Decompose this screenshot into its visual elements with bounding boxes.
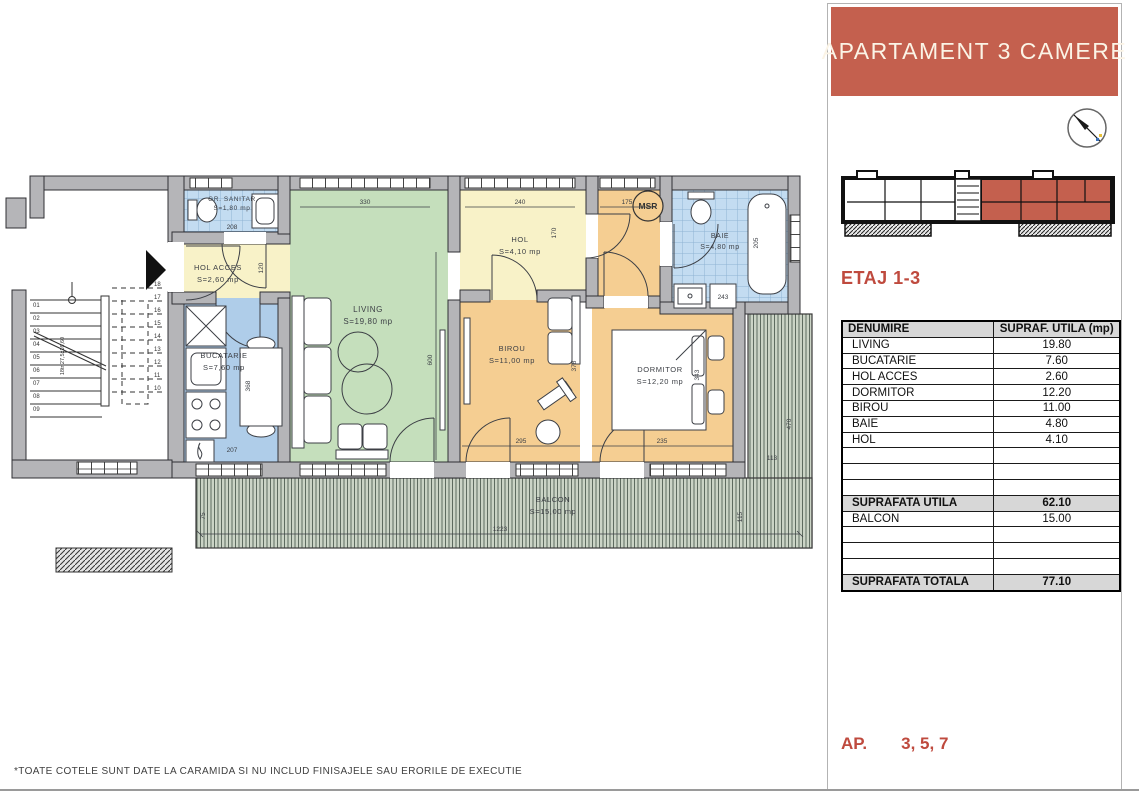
footnote: *TOATE COTELE SUNT DATE LA CARAMIDA SI N…	[14, 766, 522, 777]
svg-text:120: 120	[258, 262, 265, 273]
room-hol	[460, 190, 586, 300]
svg-text:208: 208	[227, 224, 238, 231]
table-empty-row	[842, 558, 1120, 574]
svg-text:04: 04	[33, 342, 40, 348]
svg-text:240: 240	[515, 199, 526, 206]
svg-text:S=19,80 mp: S=19,80 mp	[343, 317, 392, 326]
table-row: BIROU 11.00	[842, 400, 1120, 416]
tv-unit-icon	[440, 330, 445, 430]
gas-heater-icon	[186, 440, 214, 462]
office-sofa-icon	[548, 296, 580, 364]
window-hol-top	[465, 178, 575, 188]
window-living-bottom	[300, 464, 386, 476]
window-stair-bottom	[77, 462, 137, 474]
svg-text:115: 115	[737, 511, 744, 522]
svg-text:BIROU: BIROU	[499, 344, 526, 353]
north-arrow-icon	[1063, 104, 1111, 152]
mini-apartment-highlight	[981, 179, 1111, 221]
svg-text:BALCON: BALCON	[536, 495, 570, 504]
svg-text:GR. SANITAR: GR. SANITAR	[208, 196, 256, 203]
sofa-icon	[292, 296, 331, 448]
table-row: HOL 4.10	[842, 432, 1120, 448]
svg-text:378: 378	[571, 360, 578, 371]
svg-text:13: 13	[154, 347, 161, 353]
table-row: LIVING 19.80	[842, 337, 1120, 353]
svg-text:03: 03	[33, 329, 40, 335]
table-row: BAIE 4.80	[842, 416, 1120, 432]
table-empty-row	[842, 543, 1120, 559]
kitchen-sink-icon	[186, 306, 226, 346]
stove-icon	[186, 392, 226, 438]
building-key-plan	[837, 162, 1118, 262]
floor-plan-sheet: 18tr 27,5x16,60 0102 0304 0506 0708 09 1…	[0, 0, 1139, 800]
svg-text:207: 207	[227, 447, 238, 454]
svg-text:S=7,60 mp: S=7,60 mp	[203, 363, 245, 372]
svg-text:02: 02	[33, 316, 40, 322]
window-birou-bottom	[516, 464, 578, 476]
window-gr-sanitar	[190, 178, 232, 188]
col-header-suprafata: SUPRAF. UTILA (mp)	[994, 321, 1120, 337]
svg-text:75: 75	[200, 512, 207, 520]
svg-text:01: 01	[33, 303, 40, 309]
svg-text:175: 175	[622, 199, 633, 206]
svg-text:11: 11	[154, 373, 161, 379]
table-row: HOL ACCES 2.60	[842, 369, 1120, 385]
table-row: BUCATARIE 7.60	[842, 353, 1120, 369]
svg-text:15: 15	[154, 321, 161, 327]
window-living-top	[300, 178, 430, 188]
svg-text:205: 205	[753, 237, 760, 248]
svg-text:05: 05	[33, 355, 40, 361]
svg-text:1223: 1223	[493, 526, 508, 533]
svg-text:16: 16	[154, 308, 161, 314]
window-corridor-top	[600, 178, 655, 188]
svg-text:235: 235	[657, 438, 668, 445]
chair-icon	[536, 420, 560, 444]
table-header-row: DENUMIRE SUPRAF. UTILA (mp)	[842, 321, 1120, 337]
small-sofa-icon	[336, 424, 388, 459]
svg-text:09: 09	[33, 407, 40, 413]
svg-text:170: 170	[551, 227, 558, 238]
svg-text:HOL ACCES: HOL ACCES	[194, 263, 242, 272]
table-empty-row	[842, 464, 1120, 480]
gas-meter: MSR	[633, 191, 663, 221]
stair-note: 18tr 27,5x16,60	[60, 337, 66, 375]
window-dormitor-bottom	[650, 464, 726, 476]
svg-text:600: 600	[427, 354, 434, 365]
window-kitchen-bottom	[196, 464, 262, 476]
table-row: DORMITOR 12.20	[842, 385, 1120, 401]
svg-text:368: 368	[245, 380, 252, 391]
table-empty-row	[842, 527, 1120, 543]
svg-text:07: 07	[33, 381, 40, 387]
svg-text:295: 295	[516, 438, 527, 445]
svg-text:LIVING: LIVING	[353, 305, 383, 314]
stair-step-numbers: 0102 0304 0506 0708 09 1817 1615 1413 12…	[33, 282, 161, 413]
msr-label: MSR	[639, 201, 658, 211]
svg-text:S=1,80 mp: S=1,80 mp	[213, 205, 250, 212]
svg-text:S=15,00 mp: S=15,00 mp	[530, 507, 577, 516]
svg-text:BAIE: BAIE	[711, 233, 729, 240]
svg-text:BUCATARIE: BUCATARIE	[200, 351, 247, 360]
mini-stairwell	[955, 179, 981, 221]
svg-text:DORMITOR: DORMITOR	[637, 365, 683, 374]
svg-text:343: 343	[694, 369, 701, 380]
ap-values: 3, 5, 7	[901, 734, 948, 754]
table-empty-row	[842, 448, 1120, 464]
apartment-numbers: AP. 3, 5, 7	[841, 734, 948, 754]
svg-text:S=2,60 mp: S=2,60 mp	[197, 275, 239, 284]
balcony-row: BALCON 15.00	[842, 511, 1120, 527]
col-header-denumire: DENUMIRE	[842, 321, 994, 337]
window-baie-right	[790, 215, 800, 262]
svg-text:10: 10	[154, 386, 161, 392]
floor-label: ETAJ 1-3	[841, 268, 921, 289]
nightstand-icon	[708, 390, 724, 414]
info-panel: APARTAMENT 3 CAMERE	[827, 3, 1122, 790]
svg-text:S=4,10 mp: S=4,10 mp	[499, 247, 541, 256]
bottom-rule	[0, 789, 1139, 791]
svg-text:17: 17	[154, 295, 161, 301]
shower-icon	[252, 194, 278, 228]
svg-text:12: 12	[154, 360, 161, 366]
svg-text:S=4,80 mp: S=4,80 mp	[700, 244, 739, 251]
nightstand-icon	[708, 336, 724, 360]
svg-text:113: 113	[767, 455, 778, 462]
svg-text:14: 14	[154, 334, 161, 340]
area-table: DENUMIRE SUPRAF. UTILA (mp) LIVING 19.80…	[841, 320, 1121, 592]
svg-text:06: 06	[33, 368, 40, 374]
pavement-hatch	[56, 548, 172, 572]
stair-stringer	[101, 296, 109, 406]
ap-prefix: AP.	[841, 734, 867, 754]
svg-text:470: 470	[786, 418, 793, 429]
apartment-title: APARTAMENT 3 CAMERE	[831, 7, 1118, 96]
total-row: SUPRAFATA TOTALA 77.10	[842, 574, 1120, 590]
svg-text:330: 330	[360, 199, 371, 206]
svg-text:S=11,00 mp: S=11,00 mp	[489, 356, 535, 365]
table-empty-row	[842, 479, 1120, 495]
svg-text:08: 08	[33, 394, 40, 400]
bookshelf-icon	[464, 318, 470, 404]
svg-text:HOL: HOL	[511, 235, 528, 244]
stairwell: 18tr 27,5x16,60 0102 0304 0506 0708 09 1…	[30, 250, 172, 572]
subtotal-row: SUPRAFATA UTILA 62.10	[842, 495, 1120, 511]
svg-text:S=12,20 mp: S=12,20 mp	[637, 377, 684, 386]
svg-text:18: 18	[154, 282, 161, 288]
svg-text:243: 243	[718, 294, 729, 301]
floor-plan: 18tr 27,5x16,60 0102 0304 0506 0708 09 1…	[0, 0, 826, 800]
